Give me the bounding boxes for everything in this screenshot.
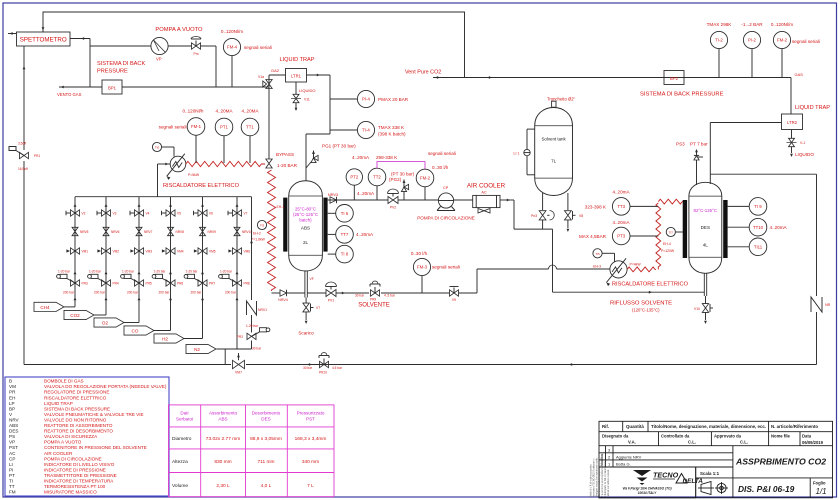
svg-text:Via F.Parigi 16/A CHIVASSO: Via F.Parigi 16/A CHIVASSO (TO) [622, 487, 671, 491]
svg-text:CONTENITORE IN PRESSIONE DEL S: CONTENITORE IN PRESSIONE DEL SOLVENTE [44, 445, 147, 450]
svg-text:TT2: TT2 [373, 175, 381, 180]
svg-text:82°C-125°C: 82°C-125°C [694, 208, 718, 213]
svg-text:TI-4: TI-4 [362, 128, 370, 133]
svg-text:PI: PI [9, 467, 13, 472]
svg-text:BYPASS: BYPASS [276, 152, 294, 157]
svg-text:V4: V4 [146, 212, 150, 216]
svg-text:1-20 BAR: 1-20 BAR [277, 163, 298, 168]
svg-text:4.5 bar: 4.5 bar [332, 366, 343, 370]
svg-text:PRESSURE: PRESSURE [97, 69, 128, 75]
svg-text:RISCALDATORE ELETTRICO: RISCALDATORE ELETTRICO [44, 395, 107, 400]
svg-text:V2: V2 [82, 212, 86, 216]
svg-text:Rif.: Rif. [602, 424, 609, 429]
svg-text:10034 ITALY: 10034 ITALY [638, 491, 657, 495]
svg-text:P=5kW: P=5kW [188, 173, 200, 177]
svg-text:PS: PS [9, 434, 15, 439]
svg-text:INDICATORE DI PRESSIONE: INDICATORE DI PRESSIONE [44, 467, 106, 472]
svg-text:AC: AC [9, 451, 16, 456]
svg-text:BP2: BP2 [670, 76, 679, 81]
svg-text:PV1: PV1 [328, 299, 335, 303]
svg-text:SOLVENTE: SOLVENTE [358, 303, 390, 309]
svg-text:segnali seriali: segnali seriali [428, 151, 456, 156]
svg-text:30 bar: 30 bar [303, 366, 313, 370]
svg-text:NR: NR [825, 303, 831, 307]
svg-text:1-20 bar: 1-20 bar [122, 270, 135, 274]
svg-text:PI-4: PI-4 [362, 97, 370, 102]
svg-text:LIQUIDO: LIQUIDO [299, 88, 315, 93]
svg-text:TI5: TI5 [595, 252, 600, 256]
svg-text:V7: V7 [316, 306, 320, 310]
svg-text:PT: PT [9, 473, 15, 478]
svg-text:200 bar: 200 bar [159, 291, 171, 295]
svg-text:TT3: TT3 [617, 204, 625, 209]
svg-text:TI-2: TI-2 [715, 38, 723, 43]
svg-text:TI 9: TI 9 [754, 204, 762, 209]
svg-text:V3: V3 [113, 212, 117, 216]
svg-text:LIQUIDO: LIQUIDO [795, 152, 814, 157]
svg-text:Assorbimento: Assorbimento [209, 411, 238, 416]
svg-text:200 bar: 200 bar [127, 291, 139, 295]
svg-text:PR: PR [9, 390, 16, 395]
svg-text:LIQUID TRAP: LIQUID TRAP [795, 105, 830, 111]
svg-text:VENTO GAS: VENTO GAS [57, 92, 82, 97]
svg-text:AIR COOLER: AIR COOLER [467, 183, 506, 190]
svg-text:NRV9: NRV9 [208, 230, 217, 234]
svg-text:TT: TT [9, 484, 15, 489]
svg-text:CP: CP [443, 186, 449, 190]
svg-text:1-20 bar: 1-20 bar [58, 270, 71, 274]
svg-text:VALVOLE DO NON RITORNO: VALVOLE DO NON RITORNO [44, 417, 107, 422]
svg-text:TI7: TI7 [669, 231, 674, 235]
svg-text:REGOLATORE DI PRESSIONE: REGOLATORE DI PRESSIONE [44, 390, 109, 395]
svg-text:200 bar: 200 bar [225, 291, 237, 295]
svg-text:C.L.: C.L. [740, 440, 748, 445]
svg-text:EH: EH [9, 395, 15, 400]
svg-text:V7: V7 [244, 212, 248, 216]
svg-text:TI 6: TI 6 [341, 211, 349, 216]
svg-text:POMPA A VUOTO: POMPA A VUOTO [44, 440, 82, 445]
svg-text:PMAX 20 BAR: PMAX 20 BAR [378, 97, 409, 102]
svg-text:It is not to be used reprinted: It is not to be used reprinted or disclo… [601, 452, 604, 497]
svg-text:ABS: ABS [218, 417, 227, 422]
svg-text:segnali seriali: segnali seriali [792, 39, 820, 44]
svg-text:SPETTOMETRO: SPETTOMETRO [20, 37, 67, 44]
svg-text:AIR COOLER: AIR COOLER [44, 451, 73, 456]
svg-text:N. articolo/Riferimento: N. articolo/Riferimento [771, 424, 818, 429]
svg-text:Serbatoi: Serbatoi [176, 417, 193, 422]
svg-text:CO2: CO2 [70, 313, 80, 318]
svg-text:B: B [9, 379, 12, 384]
svg-text:830 mm: 830 mm [214, 459, 231, 465]
svg-text:P=120W: P=120W [661, 249, 675, 253]
svg-text:SISTEMA DI BACK PRESSURE: SISTEMA DI BACK PRESSURE [44, 406, 110, 411]
svg-text:a third party for bid or manuf: a third party for bid or manufacturing [604, 459, 607, 497]
svg-text:PST: PST [9, 445, 18, 450]
svg-text:1-20 bar: 1-20 bar [154, 270, 167, 274]
svg-text:LTR1: LTR1 [291, 74, 302, 79]
svg-text:Scala 1:1: Scala 1:1 [700, 471, 720, 476]
svg-text:V.A.: V.A. [628, 440, 636, 445]
svg-text:7 L: 7 L [307, 483, 314, 489]
svg-text:168,3 x 3,4mm: 168,3 x 3,4mm [295, 436, 327, 442]
svg-text:NRV7: NRV7 [144, 230, 153, 234]
svg-text:4..20mA: 4..20mA [352, 155, 370, 160]
svg-text:Pn3: Pn3 [531, 214, 537, 218]
svg-text:NRV8: NRV8 [176, 230, 185, 234]
svg-text:30 bar: 30 bar [355, 294, 365, 298]
svg-text:PR9: PR9 [370, 298, 376, 302]
svg-text:Batch di 1 K di volume proprie: Batch di 1 K di volume proprieta [590, 464, 593, 497]
svg-text:EH-2: EH-2 [253, 232, 261, 236]
svg-text:PT 7 bar: PT 7 bar [690, 142, 708, 147]
svg-text:P=1,6kW: P=1,6kW [251, 238, 266, 242]
svg-text:PR8: PR8 [244, 282, 250, 286]
svg-text:PR1: PR1 [34, 154, 40, 158]
svg-text:MAX 4,5BAR: MAX 4,5BAR [579, 234, 607, 239]
svg-text:(25°C-125°C: (25°C-125°C [293, 212, 318, 217]
svg-text:P=4kW: P=4kW [630, 263, 642, 267]
svg-text:VALVOLA DI SICUREZZA: VALVOLA DI SICUREZZA [44, 434, 98, 439]
svg-text:1/1: 1/1 [815, 487, 826, 496]
svg-text:TMAX 298K: TMAX 298K [707, 22, 733, 27]
svg-text:CH4: CH4 [40, 305, 50, 310]
svg-text:FM-2: FM-2 [420, 176, 431, 181]
svg-text:4..20mA: 4..20mA [357, 191, 375, 196]
svg-text:POMPA DI CIRCOLAZIONE: POMPA DI CIRCOLAZIONE [44, 456, 102, 461]
svg-text:TERMORESISTENZA PT 100: TERMORESISTENZA PT 100 [44, 484, 106, 489]
svg-text:VM: VM [9, 384, 16, 389]
svg-text:PR5: PR5 [146, 282, 152, 286]
svg-text:FM-3: FM-3 [417, 265, 428, 270]
svg-text:PV2: PV2 [390, 206, 397, 210]
svg-text:TI: TI [9, 479, 13, 484]
svg-text:2L: 2L [303, 240, 309, 245]
svg-text:1-20 bar: 1-20 bar [186, 270, 199, 274]
svg-text:V11: V11 [304, 98, 310, 102]
svg-text:Botta G.: Botta G. [616, 462, 631, 467]
svg-text:EH-1: EH-1 [277, 205, 285, 209]
svg-text:TT10: TT10 [753, 225, 764, 230]
svg-text:Pm: Pm [193, 52, 198, 56]
svg-text:DES: DES [261, 417, 270, 422]
svg-text:BOMBOLE DI GAS: BOMBOLE DI GAS [44, 379, 84, 384]
svg-text:PS3: PS3 [676, 142, 685, 147]
svg-text:PR3: PR3 [82, 282, 88, 286]
svg-text:BP1: BP1 [108, 86, 117, 91]
svg-text:PST: PST [306, 417, 315, 422]
svg-text:segnali seriali: segnali seriali [244, 45, 272, 50]
svg-text:Volume: Volume [172, 483, 188, 489]
svg-text:EH-4: EH-4 [663, 242, 671, 246]
svg-text:(120°C-135°C): (120°C-135°C) [632, 308, 660, 313]
svg-text:TRASMETTITORE DI PRESSIONE: TRASMETTITORE DI PRESSIONE [44, 473, 117, 478]
svg-text:GA2: GA2 [271, 68, 280, 73]
svg-text:LIQUID TRAP: LIQUID TRAP [44, 401, 73, 406]
svg-text:POMPA A VUOTO: POMPA A VUOTO [155, 27, 203, 33]
svg-text:(PG2): (PG2) [389, 177, 402, 182]
svg-text:LIQUID TRAP: LIQUID TRAP [280, 57, 315, 63]
svg-text:TT7: TT7 [341, 232, 349, 237]
svg-text:0..30 l/h: 0..30 l/h [432, 165, 449, 170]
svg-text:VALVOLA DO REGOLAZIONE PORTATA: VALVOLA DO REGOLAZIONE PORTATA (NEEDLE V… [44, 384, 167, 389]
svg-text:06/09/2019: 06/09/2019 [802, 440, 824, 445]
svg-text:0..30 l/h: 0..30 l/h [411, 251, 428, 256]
svg-text:V-1: V-1 [800, 141, 805, 145]
svg-text:Disegnato da: Disegnato da [602, 434, 629, 439]
svg-text:4..20MA: 4..20MA [241, 109, 259, 114]
svg-text:REATTORE DI DESORBIMENTO: REATTORE DI DESORBIMENTO [44, 429, 113, 434]
svg-text:NRV: NRV [9, 417, 20, 422]
svg-text:3,5off: 3,5off [18, 142, 26, 146]
svg-text:NRV5: NRV5 [80, 230, 89, 234]
svg-text:GAS: GAS [795, 72, 804, 77]
svg-text:PI-2: PI-2 [748, 38, 756, 43]
svg-text:RIFLUSSO SOLVENTE: RIFLUSSO SOLVENTE [610, 301, 672, 307]
svg-text:INDICATORE DI TEMPERATURA: INDICATORE DI TEMPERATURA [44, 479, 114, 484]
svg-text:ABS: ABS [301, 226, 310, 231]
svg-text:BP: BP [9, 406, 15, 411]
svg-text:4..20MA: 4..20MA [215, 109, 233, 114]
svg-text:2,30 L: 2,30 L [216, 483, 230, 489]
svg-text:riservata a TECNO DELTA utili: riservata a TECNO DELTA utilizzare o [592, 458, 595, 497]
svg-text:V10: V10 [694, 307, 700, 311]
svg-text:4..20mA: 4..20mA [612, 190, 630, 195]
svg-text:NRV3: NRV3 [328, 192, 339, 197]
svg-text:TI3: TI3 [260, 224, 265, 228]
svg-text:4..20mA: 4..20mA [770, 225, 788, 230]
svg-text:H2: H2 [162, 337, 168, 342]
svg-text:711 mm: 711 mm [258, 459, 275, 465]
svg-text:Titolo/Nome, designazione, mat: Titolo/Nome, designazione, materiale, di… [651, 424, 766, 429]
svg-text:4..20mA: 4..20mA [356, 232, 374, 237]
svg-text:Aggiunte NRV: Aggiunte NRV [616, 455, 642, 460]
svg-text:V9: V9 [452, 298, 456, 302]
svg-text:TT1: TT1 [246, 125, 254, 130]
svg-text:O2: O2 [102, 321, 109, 326]
svg-text:25°C-80°C: 25°C-80°C [295, 207, 316, 212]
svg-text:NRV4: NRV4 [278, 298, 288, 302]
svg-text:CO: CO [132, 329, 139, 334]
svg-text:Nome file: Nome file [771, 434, 791, 439]
svg-text:DES: DES [9, 429, 18, 434]
svg-text:segnali seriali: segnali seriali [159, 125, 187, 130]
svg-text:DELTA: DELTA [683, 478, 704, 485]
svg-text:SISTEMA DI BACK PRESSURE: SISTEMA DI BACK PRESSURE [640, 92, 724, 98]
svg-text:VALVOLE PNEUMATICHE & VALVOLE: VALVOLE PNEUMATICHE & VALVOLE TRE VIE [44, 412, 144, 417]
svg-text:323-398 K: 323-398 K [585, 205, 607, 210]
svg-text:TI 8: TI 8 [341, 252, 349, 257]
svg-text:Diametro: Diametro [172, 436, 192, 442]
svg-text:PT2: PT2 [350, 175, 358, 180]
svg-text:1-20 bar: 1-20 bar [220, 270, 233, 274]
svg-text:divulgare senza il ns autorizz: divulgare senza il ns autorizzato scritt… [595, 457, 598, 497]
svg-text:VM4: VM4 [177, 250, 184, 254]
svg-text:AC: AC [481, 191, 487, 195]
svg-text:4..20mA: 4..20mA [612, 220, 630, 225]
svg-text:73.02x 2.77 mm: 73.02x 2.77 mm [206, 436, 240, 442]
svg-text:INDICATORE DI LIVELLO VISIVO: INDICATORE DI LIVELLO VISIVO [44, 462, 115, 467]
svg-text:EH-3: EH-3 [593, 265, 601, 269]
svg-text:VP: VP [156, 57, 162, 62]
svg-text:Dati: Dati [180, 411, 188, 416]
svg-text:LI 1: LI 1 [514, 152, 520, 156]
svg-text:without our written consent.: without our written consent. [607, 469, 610, 497]
svg-text:1-20 bar: 1-20 bar [246, 324, 259, 328]
svg-text:TI0: TI0 [155, 146, 160, 150]
svg-text:NRV10: NRV10 [242, 230, 252, 234]
svg-text:FM-2: FM-2 [777, 38, 788, 43]
svg-text:298-338 K: 298-338 K [376, 155, 398, 160]
svg-text:4,0 L: 4,0 L [261, 483, 272, 489]
svg-text:16,5off: 16,5off [18, 167, 28, 171]
svg-text:340 mm: 340 mm [302, 459, 319, 465]
svg-text:SISTEMA DI BACK: SISTEMA DI BACK [97, 61, 145, 67]
svg-text:Vent Pure CO2: Vent Pure CO2 [405, 70, 441, 76]
svg-text:TECNO: TECNO [653, 471, 679, 480]
svg-text:V6: V6 [209, 212, 213, 216]
svg-text:Data: Data [802, 434, 812, 439]
svg-text:200 bar: 200 bar [94, 291, 106, 295]
svg-text:PR10: PR10 [319, 371, 327, 375]
svg-text:segnali seriali: segnali seriali [432, 265, 460, 270]
svg-text:PR7: PR7 [209, 282, 215, 286]
svg-text:0..120Nl/m: 0..120Nl/m [771, 22, 793, 27]
svg-text:VM5: VM5 [209, 250, 216, 254]
svg-text:NRV6: NRV6 [111, 230, 120, 234]
svg-text:FM-4: FM-4 [227, 45, 238, 50]
svg-text:POMPA DI CIRCOLAZIONE: POMPA DI CIRCOLAZIONE [417, 216, 475, 221]
svg-text:VM2: VM2 [113, 250, 120, 254]
svg-text:PG1 (PT 30 bar): PG1 (PT 30 bar) [322, 144, 356, 149]
svg-text:4..5 bar: 4..5 bar [384, 294, 396, 298]
svg-text:VP: VP [9, 440, 15, 445]
svg-text:Solvent tank: Solvent tank [542, 137, 567, 142]
svg-text:LTR2: LTR2 [787, 120, 798, 125]
svg-text:V1a: V1a [258, 75, 264, 79]
svg-text:PR2: PR2 [237, 335, 243, 339]
svg-text:88,9 x 3,05mm: 88,9 x 3,05mm [250, 436, 282, 442]
svg-text:200 bar: 200 bar [191, 291, 203, 295]
svg-text:7L: 7L [551, 159, 556, 164]
svg-text:LP: LP [9, 401, 15, 406]
svg-text:Controllato da: Controllato da [661, 434, 690, 439]
svg-text:NRV1: NRV1 [258, 308, 267, 312]
svg-text:RISCALDATORE ELETTRICO: RISCALDATORE ELETTRICO [163, 183, 240, 189]
svg-text:VM6: VM6 [244, 250, 251, 254]
svg-text:VF: VF [310, 277, 314, 281]
svg-text:CP: CP [9, 456, 15, 461]
svg-text:Scarico: Scarico [298, 331, 314, 336]
svg-text:This is our exclusive property: This is our exclusive property. [598, 466, 601, 497]
svg-text:(398 K batch): (398 K batch) [378, 132, 406, 137]
svg-text:DIS. P&I 06-19: DIS. P&I 06-19 [738, 484, 795, 494]
svg-text:N2: N2 [194, 347, 200, 352]
svg-text:V8: V8 [579, 214, 583, 218]
svg-text:PR4: PR4 [113, 282, 119, 286]
svg-text:Altezza: Altezza [172, 459, 188, 465]
svg-text:PT1: PT1 [220, 125, 228, 130]
svg-text:200 bar: 200 bar [63, 291, 75, 295]
svg-text:V5: V5 [177, 212, 181, 216]
svg-text:PT3: PT3 [617, 234, 625, 239]
svg-text:TI11: TI11 [754, 244, 763, 249]
svg-text:REATTORE DI ASSORBIMENTO: REATTORE DI ASSORBIMENTO [44, 423, 113, 428]
svg-text:RISCALDATORE ELETTRICO: RISCALDATORE ELETTRICO [612, 282, 689, 288]
svg-text:VM7: VM7 [235, 371, 242, 375]
svg-text:Quantità: Quantità [626, 424, 644, 429]
svg-text:Desorbimento: Desorbimento [252, 411, 281, 416]
svg-text:0..120Nl/h: 0..120Nl/h [183, 109, 204, 114]
svg-text:ASSPRBIMENTO CO2: ASSPRBIMENTO CO2 [735, 457, 826, 467]
svg-text:FM-1: FM-1 [191, 124, 202, 129]
svg-text:ABS: ABS [9, 423, 18, 428]
svg-text:0..120Nl/m: 0..120Nl/m [221, 29, 243, 34]
svg-text:30 bar: 30 bar [252, 347, 262, 351]
svg-text:1-20 bar: 1-20 bar [89, 270, 102, 274]
svg-text:VM1: VM1 [82, 250, 89, 254]
svg-text:VM3: VM3 [146, 250, 153, 254]
svg-text:-1...2 BAR: -1...2 BAR [741, 22, 763, 27]
svg-text:DES: DES [701, 225, 710, 230]
svg-text:4L: 4L [703, 243, 709, 248]
svg-text:batch): batch) [299, 218, 312, 223]
svg-text:TMAX 338 K: TMAX 338 K [378, 125, 405, 130]
svg-text:(PT 30 bar): (PT 30 bar) [391, 171, 415, 176]
svg-text:Pressurizzato: Pressurizzato [297, 411, 325, 416]
svg-text:Foglio: Foglio [813, 481, 826, 486]
svg-text:Approvato da: Approvato da [714, 434, 742, 439]
svg-text:PR6: PR6 [177, 282, 183, 286]
svg-text:LI: LI [9, 462, 13, 467]
svg-text:C.L.: C.L. [688, 440, 696, 445]
svg-text:MISURATORE MASSICO: MISURATORE MASSICO [44, 490, 97, 495]
svg-text:FM: FM [9, 490, 16, 495]
